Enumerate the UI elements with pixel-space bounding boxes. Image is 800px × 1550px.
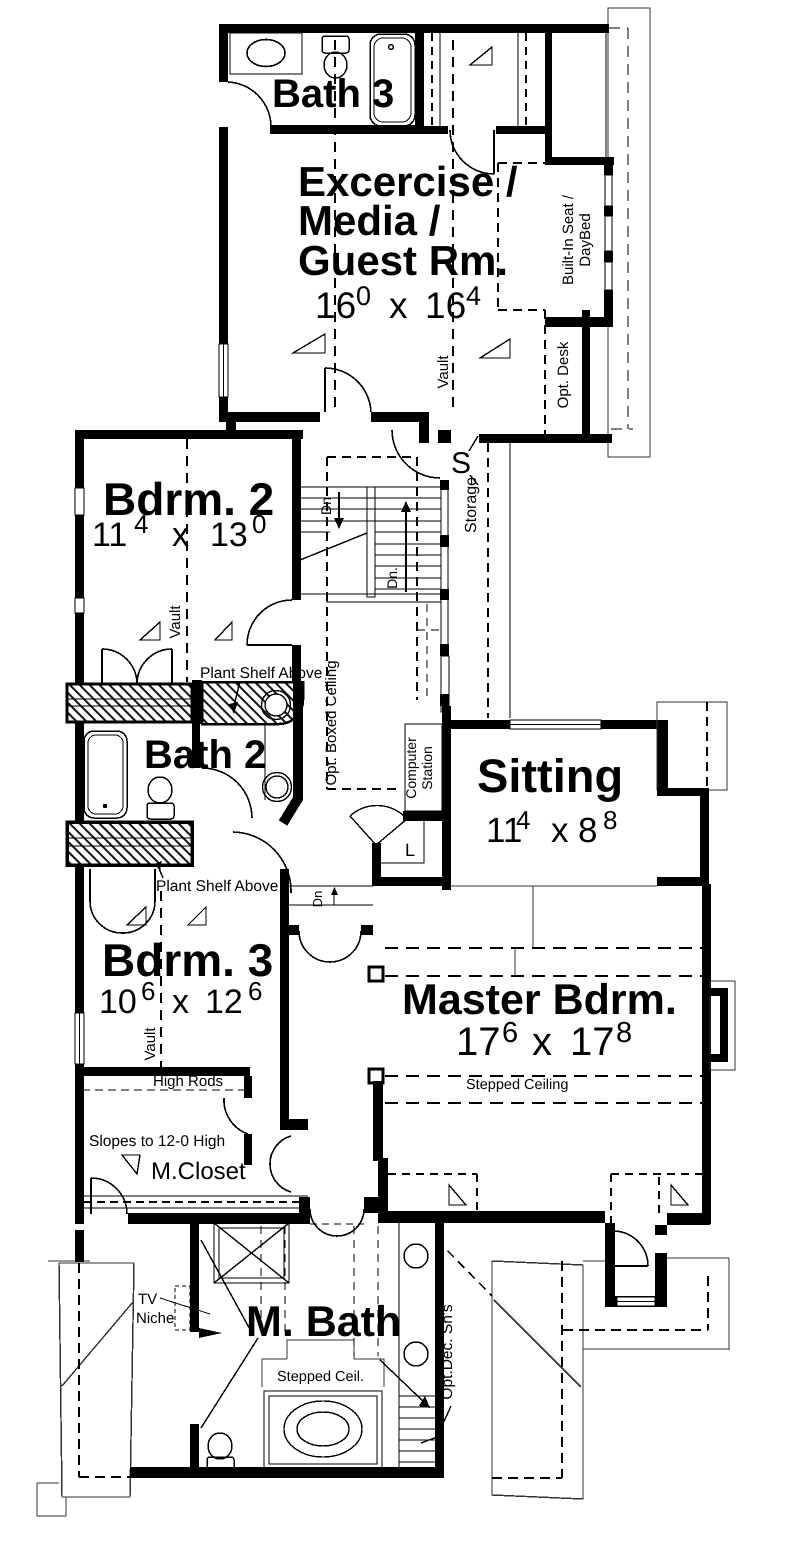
svg-text:6: 6: [502, 1017, 518, 1049]
svg-text:S: S: [451, 447, 471, 480]
svg-text:Opt.Dec. Sh's: Opt.Dec. Sh's: [439, 1304, 456, 1399]
svg-text:x: x: [389, 285, 408, 326]
svg-text:TV: TV: [138, 1291, 157, 1308]
svg-text:17: 17: [456, 1020, 501, 1064]
svg-text:Dn.: Dn.: [384, 567, 400, 589]
svg-text:x: x: [551, 811, 569, 850]
svg-text:x: x: [172, 983, 189, 1021]
svg-text:Master Bdrm.: Master Bdrm.: [402, 976, 677, 1024]
svg-text:Station: Station: [419, 746, 435, 790]
svg-text:8: 8: [603, 805, 617, 835]
svg-text:13: 13: [210, 516, 248, 554]
svg-text:16: 16: [315, 285, 356, 326]
svg-text:11: 11: [92, 516, 127, 554]
svg-text:Niche: Niche: [136, 1310, 174, 1327]
svg-text:Built-In Seat /: Built-In Seat /: [560, 194, 577, 285]
svg-text:Vault: Vault: [142, 1027, 159, 1061]
svg-text:Plant Shelf Above: Plant Shelf Above: [200, 665, 322, 682]
svg-text:Storage: Storage: [463, 477, 480, 533]
svg-text:Dn: Dn: [318, 497, 334, 515]
svg-text:10: 10: [99, 983, 137, 1021]
svg-text:8: 8: [578, 811, 597, 850]
svg-text:High Rods: High Rods: [153, 1073, 223, 1090]
svg-text:0: 0: [356, 281, 371, 311]
svg-text:6: 6: [248, 976, 262, 1006]
svg-text:Sitting: Sitting: [477, 749, 623, 802]
svg-text:Computer: Computer: [403, 737, 419, 799]
svg-text:4: 4: [516, 805, 530, 835]
svg-text:Plant Shelf Above: Plant Shelf Above: [156, 878, 278, 895]
svg-text:Bath 3: Bath 3: [272, 72, 394, 116]
svg-text:Stepped Ceil.: Stepped Ceil.: [277, 1369, 364, 1385]
svg-text:DayBed: DayBed: [577, 213, 594, 266]
svg-text:x: x: [532, 1020, 552, 1064]
svg-text:Stepped Ceiling: Stepped Ceiling: [466, 1077, 568, 1093]
svg-text:Bath 2: Bath 2: [144, 733, 266, 777]
svg-text:Guest Rm.: Guest Rm.: [298, 237, 508, 284]
svg-text:Opt. Desk: Opt. Desk: [555, 341, 572, 408]
svg-text:Vault: Vault: [167, 605, 184, 639]
svg-text:0: 0: [252, 509, 266, 539]
svg-text:8: 8: [616, 1017, 632, 1049]
svg-text:Opt. Boxed Ceiling: Opt. Boxed Ceiling: [323, 660, 340, 785]
svg-text:L: L: [405, 840, 415, 860]
svg-text:17: 17: [570, 1020, 615, 1064]
svg-text:16: 16: [425, 285, 466, 326]
svg-text:4: 4: [466, 281, 481, 311]
svg-text:6: 6: [141, 976, 155, 1006]
svg-text:4: 4: [134, 509, 148, 539]
svg-text:Slopes to 12-0 High: Slopes to 12-0 High: [89, 1133, 225, 1150]
svg-text:Dn: Dn: [310, 891, 325, 908]
svg-text:M.Closet: M.Closet: [151, 1158, 246, 1185]
svg-text:Vault: Vault: [435, 355, 452, 389]
svg-text:12: 12: [205, 983, 243, 1021]
